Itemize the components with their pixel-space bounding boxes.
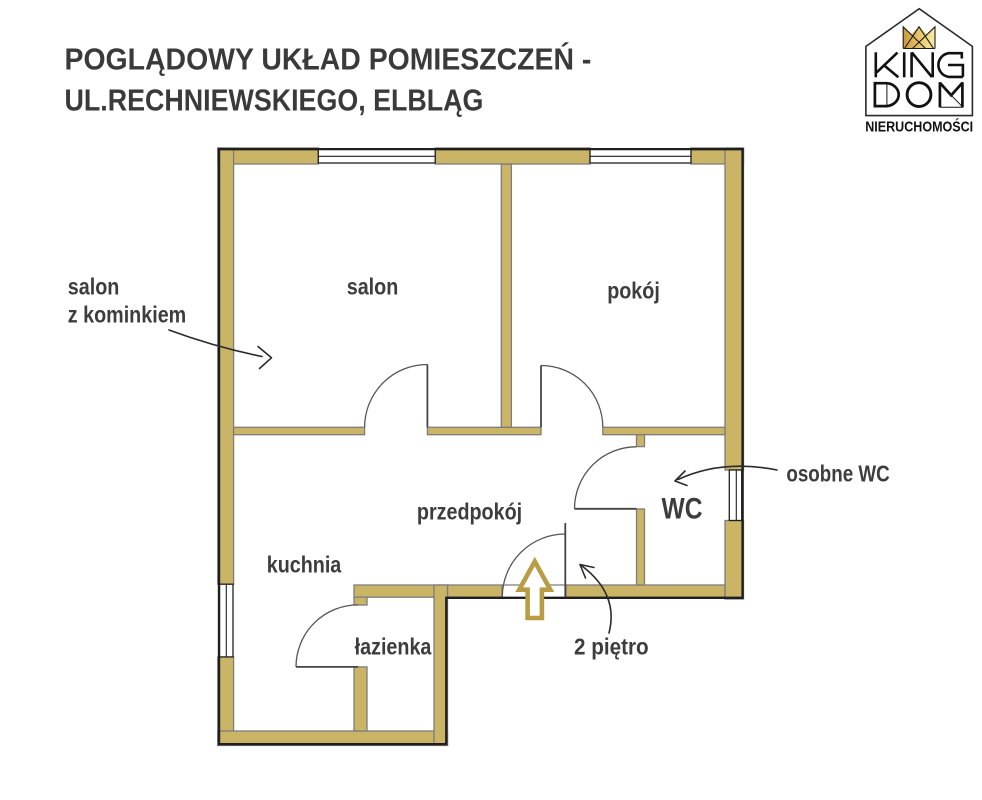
svg-text:łazienka: łazienka: [355, 633, 433, 660]
svg-text:osobne WC: osobne WC: [786, 461, 889, 488]
svg-text:z kominkiem: z kominkiem: [68, 301, 186, 328]
svg-text:salon: salon: [68, 273, 120, 300]
svg-text:kuchnia: kuchnia: [267, 551, 342, 578]
svg-text:UL.RECHNIEWSKIEGO, ELBLĄG: UL.RECHNIEWSKIEGO, ELBLĄG: [65, 84, 484, 118]
svg-text:salon: salon: [347, 273, 399, 300]
svg-text:2 piętro: 2 piętro: [574, 633, 649, 660]
svg-text:pokój: pokój: [607, 277, 660, 304]
svg-text:przedpokój: przedpokój: [417, 498, 522, 525]
svg-text:POGLĄDOWY UKŁAD POMIESZCZEŃ -: POGLĄDOWY UKŁAD POMIESZCZEŃ -: [65, 41, 592, 76]
svg-text:NIERUCHOMOŚCI: NIERUCHOMOŚCI: [865, 119, 973, 135]
svg-text:WC: WC: [662, 491, 703, 525]
